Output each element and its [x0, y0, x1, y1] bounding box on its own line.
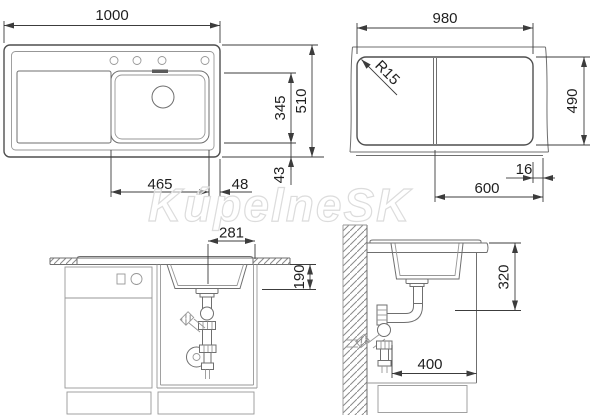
sink-top-view: 1000 510 345 43 465	[4, 7, 324, 197]
dim-drain-to-edge: 281	[208, 225, 255, 285]
worktop-cutout-view: R15 980 490 600 16	[350, 10, 590, 202]
svg-text:465: 465	[147, 176, 172, 193]
plinth	[378, 386, 467, 413]
dim-height-clearance: 320	[455, 243, 521, 311]
svg-text:16: 16	[516, 161, 533, 178]
worktop-side	[367, 243, 488, 253]
dim-bowl-height: 190	[262, 264, 316, 289]
dishwasher-knob	[131, 274, 142, 285]
dim-corner-radius: R15	[362, 57, 403, 95]
svg-text:490: 490	[564, 88, 581, 113]
drainboard	[17, 71, 111, 143]
sink-outline	[4, 45, 220, 157]
svg-text:510: 510	[293, 88, 310, 113]
tap-hole	[110, 57, 118, 65]
bowl-front-inner	[171, 265, 244, 286]
dishwasher-button	[117, 274, 125, 284]
dim-bowl-depth: 345	[224, 73, 296, 143]
overflow-slot	[152, 70, 168, 74]
tap-hole	[201, 57, 209, 65]
front-section-view: 281 190	[50, 225, 316, 415]
svg-text:600: 600	[474, 180, 499, 197]
bowl-side-inner	[395, 244, 459, 276]
bowl-side-outer	[391, 244, 463, 280]
sink-inner-rim	[12, 52, 215, 151]
worktop-hatch-left	[50, 258, 77, 264]
dim-cutout-depth: 490	[536, 57, 590, 145]
svg-text:281: 281	[219, 225, 244, 242]
svg-text:345: 345	[272, 95, 289, 120]
bowl-outline	[111, 71, 209, 143]
siphon-front	[180, 289, 218, 380]
drain-hole	[152, 86, 174, 108]
bowl-inner	[115, 75, 205, 139]
plinth	[158, 392, 254, 414]
sink-dimension-drawing: 1000 510 345 43 465	[0, 0, 600, 420]
svg-text:1000: 1000	[95, 7, 128, 24]
tap-hole	[133, 57, 141, 65]
dim-cutout-edge-offset: 16	[506, 161, 555, 183]
side-section-view: 320 400	[343, 225, 521, 415]
wall-hatch	[343, 225, 367, 415]
dim-depth-clearance: 400	[392, 345, 477, 378]
svg-text:400: 400	[417, 356, 442, 373]
svg-text:48: 48	[232, 176, 249, 193]
tap-hole	[158, 57, 166, 65]
base-cabinets-front	[65, 265, 257, 415]
dim-total-width: 1000	[4, 7, 220, 43]
dishwasher-branch-cap	[180, 312, 193, 325]
svg-text:43: 43	[271, 167, 288, 184]
svg-text:320: 320	[496, 264, 513, 289]
svg-text:980: 980	[432, 10, 457, 27]
dim-bottom-offset: 43	[271, 130, 291, 185]
bowl-front-outer	[167, 265, 247, 289]
worktop-hatch-right	[253, 258, 290, 264]
svg-text:190: 190	[291, 264, 308, 289]
plinth	[67, 392, 151, 414]
svg-text:R15: R15	[371, 57, 402, 88]
technical-drawing-canvas: 1000 510 345 43 465	[0, 0, 600, 420]
dim-edge-offset: 48	[220, 159, 252, 197]
